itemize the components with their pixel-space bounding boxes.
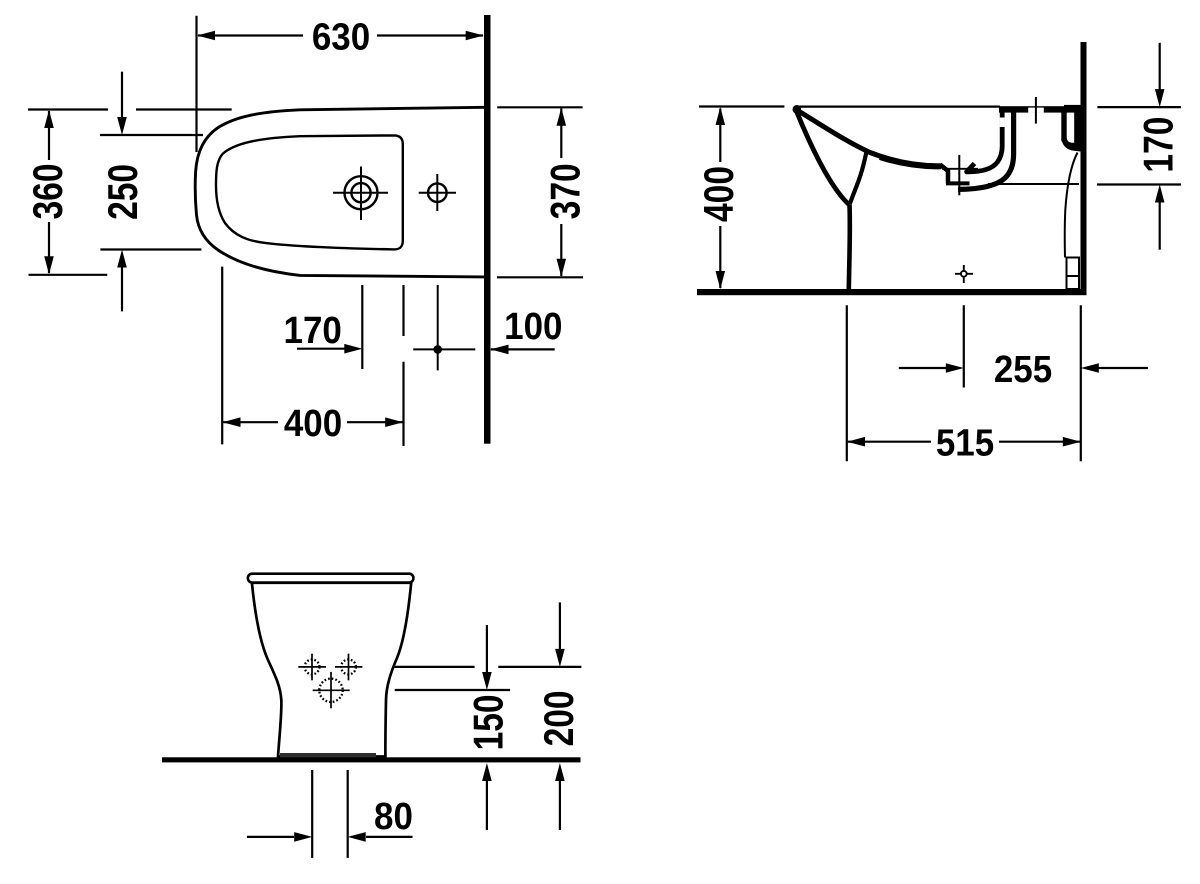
svg-text:170: 170 bbox=[284, 309, 342, 352]
svg-text:170: 170 bbox=[1136, 117, 1182, 173]
svg-text:370: 370 bbox=[543, 163, 589, 219]
svg-text:200: 200 bbox=[536, 690, 582, 746]
svg-text:150: 150 bbox=[466, 694, 512, 750]
svg-text:515: 515 bbox=[936, 421, 994, 464]
svg-text:250: 250 bbox=[101, 164, 147, 220]
svg-text:630: 630 bbox=[312, 15, 370, 58]
svg-text:400: 400 bbox=[697, 166, 743, 222]
svg-text:400: 400 bbox=[284, 402, 342, 445]
svg-text:360: 360 bbox=[26, 163, 72, 219]
svg-text:100: 100 bbox=[504, 305, 562, 348]
svg-text:80: 80 bbox=[374, 795, 413, 838]
svg-text:255: 255 bbox=[994, 348, 1052, 391]
